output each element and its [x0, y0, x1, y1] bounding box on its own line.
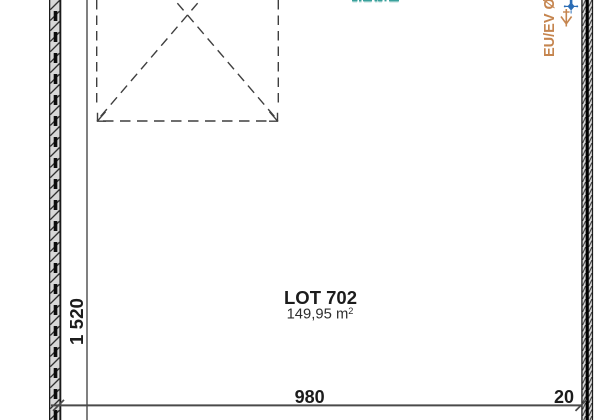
svg-text:980: 980 [295, 387, 325, 407]
svg-text:LOT 702: LOT 702 [284, 287, 357, 308]
svg-text:149,95 m2: 149,95 m2 [287, 306, 354, 323]
svg-text:EU/EV Ø: EU/EV Ø [542, 0, 558, 57]
svg-text:1 520: 1 520 [66, 298, 87, 345]
svg-text:20: 20 [554, 387, 574, 407]
